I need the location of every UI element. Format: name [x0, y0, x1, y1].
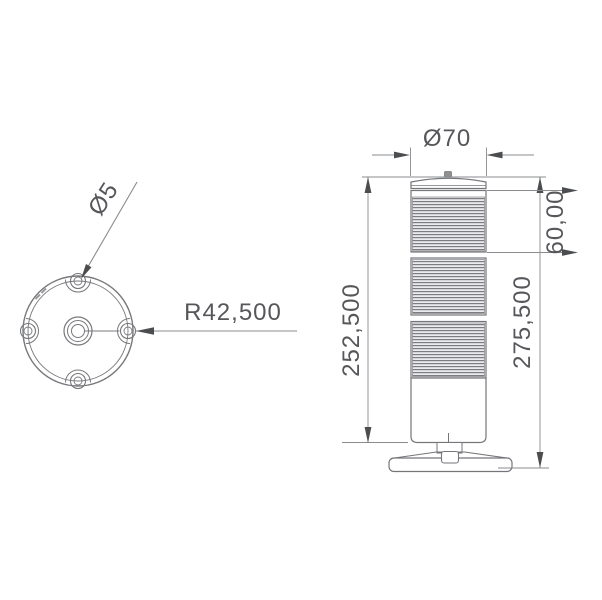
- total-height-label: 275,500: [509, 275, 537, 369]
- tower-cap: [411, 178, 486, 188]
- radius-leader-arrow: [136, 327, 154, 335]
- arrow-left: [394, 152, 410, 159]
- tower-lower-body: [411, 378, 486, 443]
- tower-diameter-label: Ø70: [423, 125, 471, 153]
- arrow-down: [365, 427, 372, 443]
- top-view: [21, 274, 136, 389]
- arrow-right: [487, 152, 503, 159]
- base-notch: [442, 452, 459, 464]
- lens-segment-1: [411, 191, 486, 253]
- arrow-up: [365, 177, 372, 193]
- segment-ribs: [413, 197, 485, 251]
- lens-segment-3: [411, 322, 486, 379]
- lens-segment-2: [411, 258, 486, 315]
- mount-radius-label: R42,500: [184, 299, 282, 327]
- hub-circle-inner: [72, 325, 85, 338]
- body-height-label: 252,500: [338, 283, 366, 377]
- segment-ribs: [413, 260, 485, 314]
- front-view: [389, 172, 512, 472]
- arrow-down: [537, 452, 544, 468]
- segment-ribs: [413, 323, 485, 377]
- segment-height-label: 60,00: [542, 189, 570, 254]
- technical-drawing: Ø5 R42,500 Ø70 252,500 275,500 60,00: [0, 0, 602, 600]
- cap-nub: [445, 172, 452, 178]
